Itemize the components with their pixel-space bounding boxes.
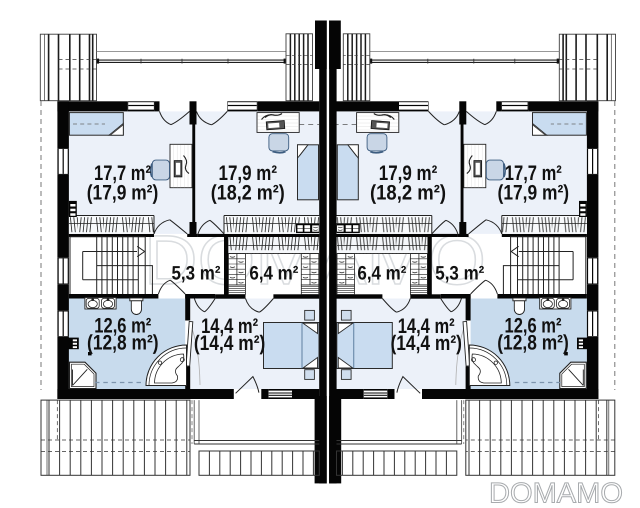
svg-text:5,3 m²: 5,3 m²: [172, 262, 221, 284]
svg-text:5,3 m²: 5,3 m²: [435, 262, 484, 284]
svg-text:(12,8 m²): (12,8 m²): [497, 332, 569, 355]
svg-text:(17,9 m²): (17,9 m²): [498, 181, 570, 204]
svg-text:(18,2 m²): (18,2 m²): [370, 181, 446, 204]
svg-text:(14,4 m²): (14,4 m²): [194, 332, 266, 355]
svg-text:DOMAMO: DOMAMO: [489, 478, 623, 508]
svg-text:(12,8 m²): (12,8 m²): [87, 332, 159, 355]
svg-text:(17,9 m²): (17,9 m²): [87, 181, 159, 204]
svg-text:(18,2 m²): (18,2 m²): [211, 181, 285, 204]
svg-text:6,4 m²: 6,4 m²: [357, 262, 406, 284]
svg-text:6,4 m²: 6,4 m²: [249, 262, 298, 284]
svg-text:(14,4 m²): (14,4 m²): [390, 332, 462, 355]
